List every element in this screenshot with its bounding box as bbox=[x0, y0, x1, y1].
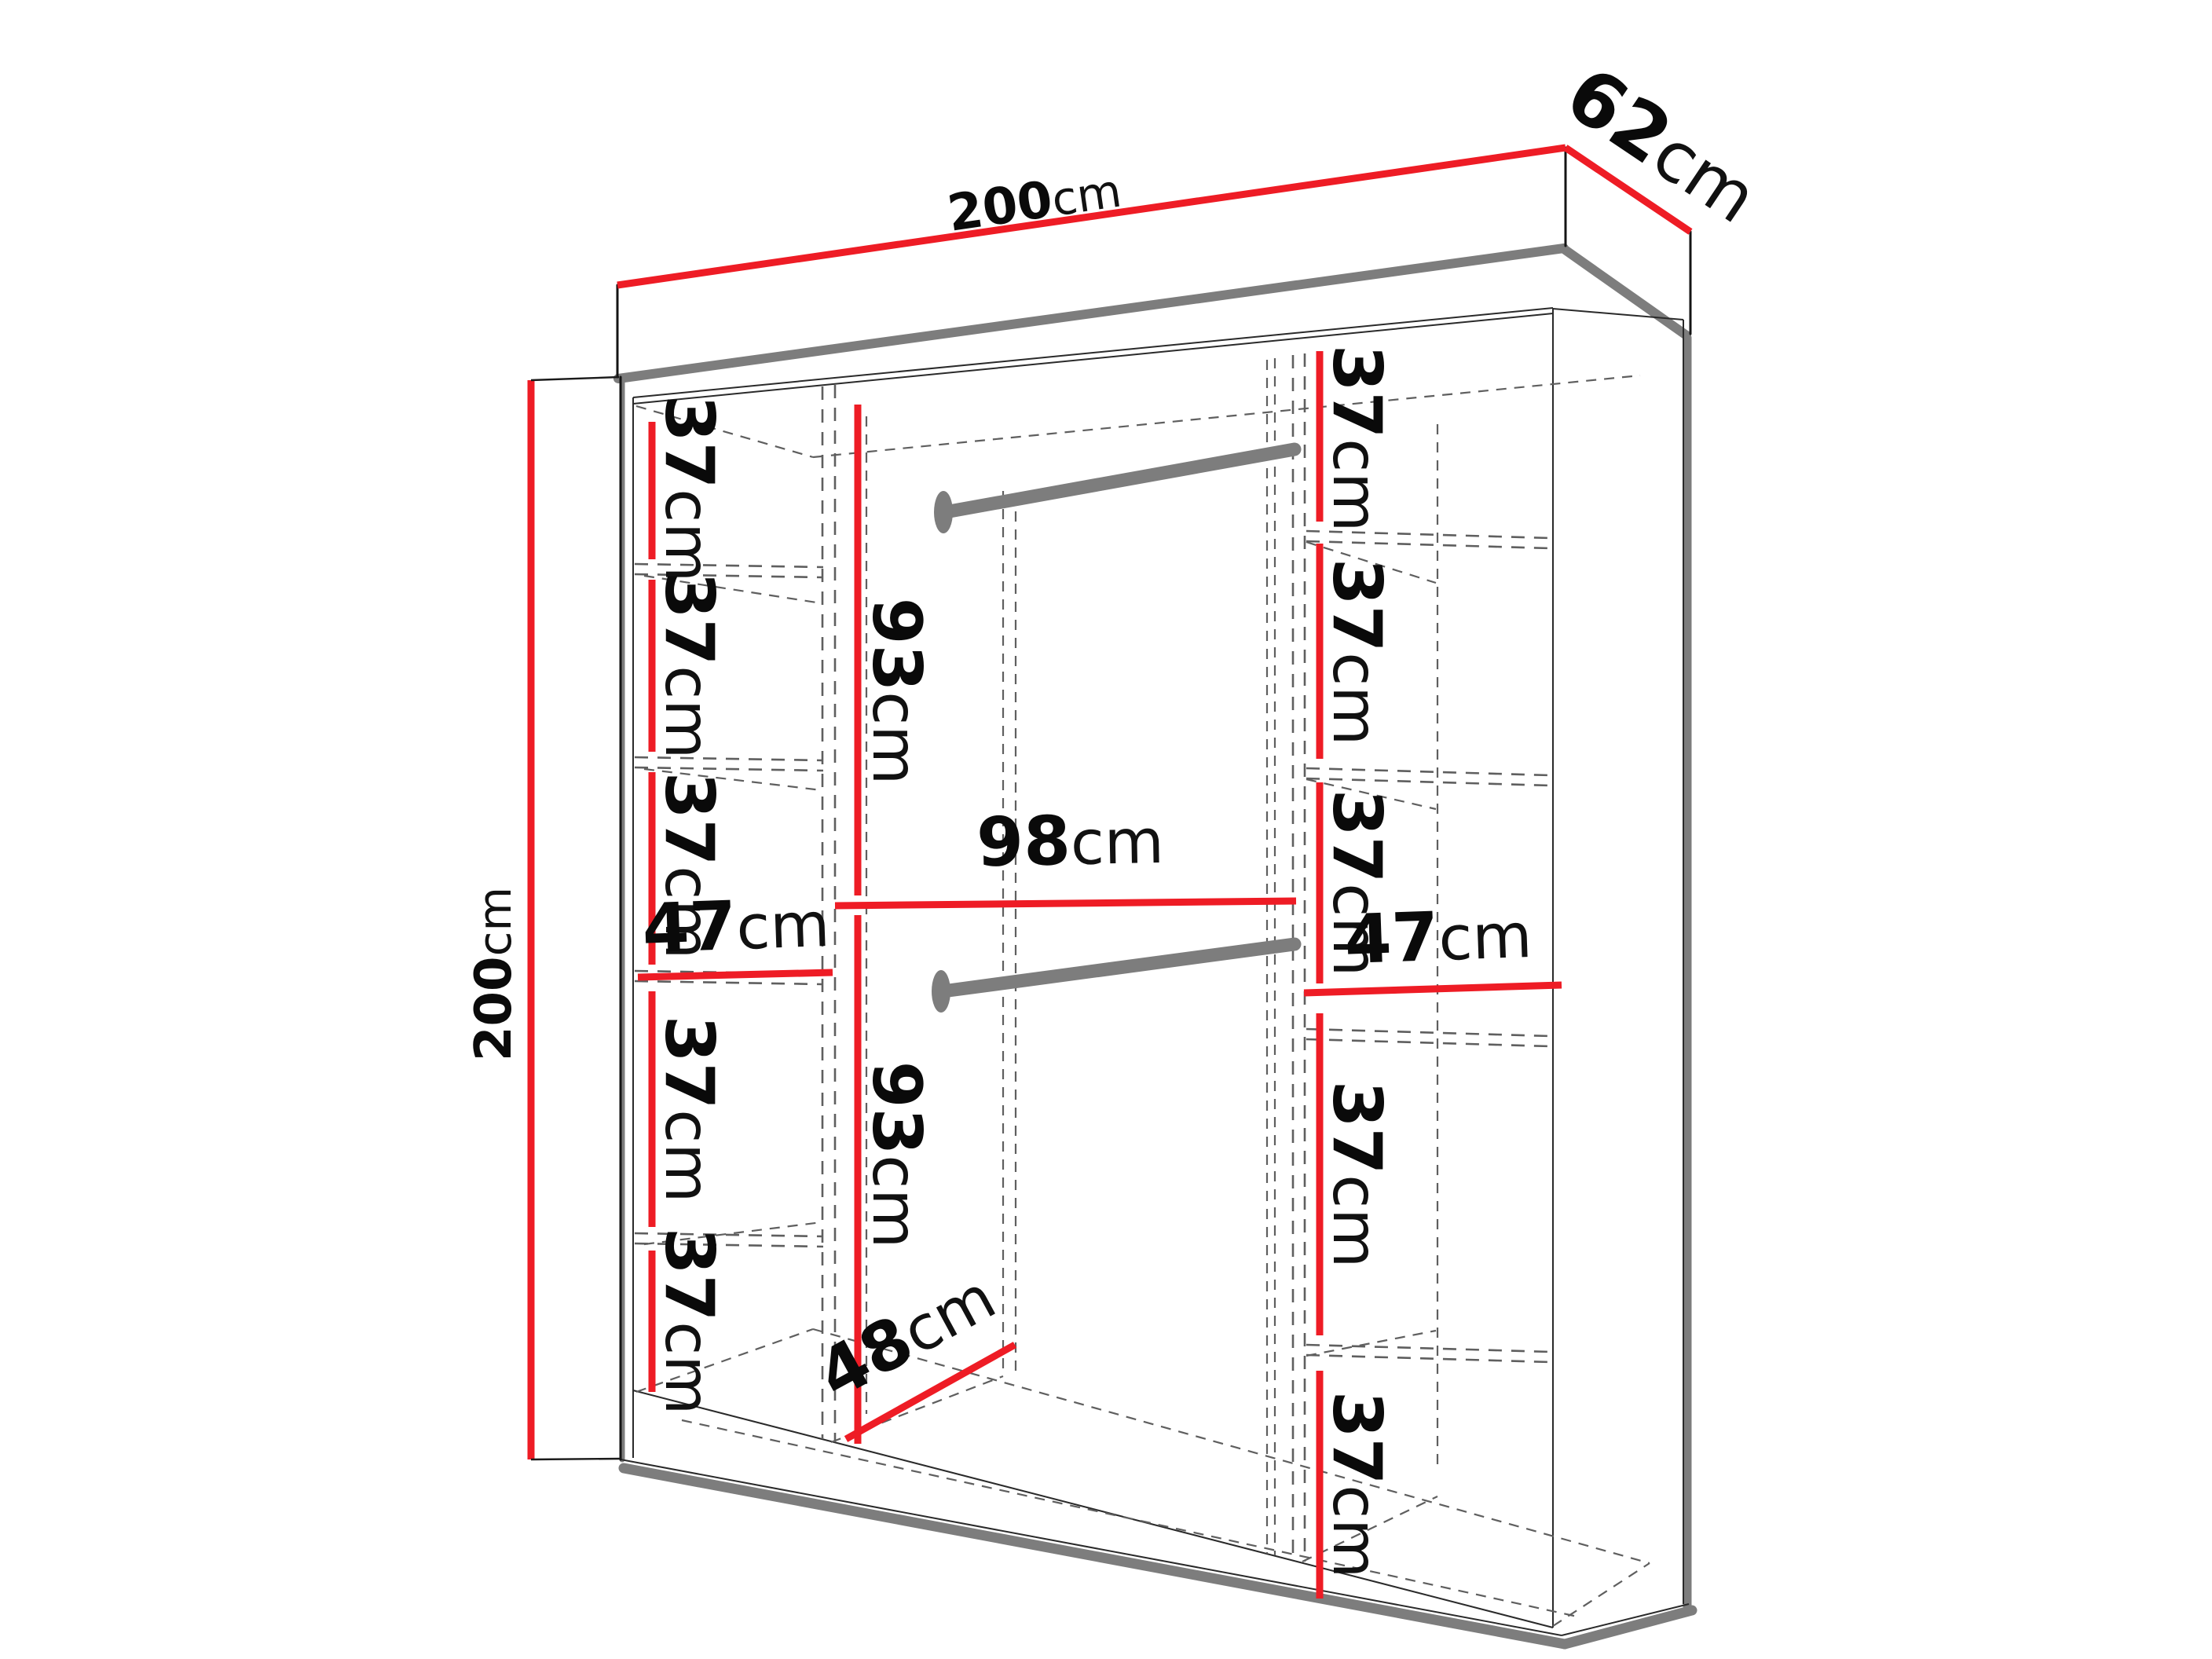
label-left-gap4: 37cm bbox=[650, 1016, 728, 1203]
label-right-col-width: 47cm bbox=[1343, 895, 1533, 980]
label-right-gap4: 37cm bbox=[1317, 1081, 1396, 1269]
label-left-gap1: 37cm bbox=[650, 395, 728, 583]
label-left-height: 200cm bbox=[465, 887, 523, 1061]
wardrobe-dimension-diagram: 200cm 62cm 200cm 37cm 37cm 37cm 47cm 37c… bbox=[0, 0, 2212, 1659]
label-mid-lower-height: 93cm bbox=[857, 1061, 936, 1249]
upper-rod-end-cap bbox=[934, 491, 953, 533]
label-left-gap5: 37cm bbox=[650, 1228, 728, 1415]
label-mid-upper-height: 93cm bbox=[857, 598, 936, 786]
label-mid-width: 98cm bbox=[976, 800, 1164, 882]
label-right-gap2: 37cm bbox=[1317, 558, 1396, 746]
label-right-gap1: 37cm bbox=[1317, 345, 1396, 533]
dim-line-mid-width bbox=[835, 901, 1296, 906]
lower-rod-end-cap bbox=[932, 970, 950, 1013]
dim-extension-top bbox=[531, 377, 619, 380]
dim-extension-bottom bbox=[531, 1459, 621, 1459]
label-left-gap2: 37cm bbox=[650, 572, 728, 760]
label-right-gap5: 37cm bbox=[1317, 1391, 1396, 1579]
label-left-col-width: 47cm bbox=[641, 884, 831, 969]
right-side-panel bbox=[1553, 306, 1683, 1635]
dim-line-left-col-width bbox=[638, 972, 833, 977]
